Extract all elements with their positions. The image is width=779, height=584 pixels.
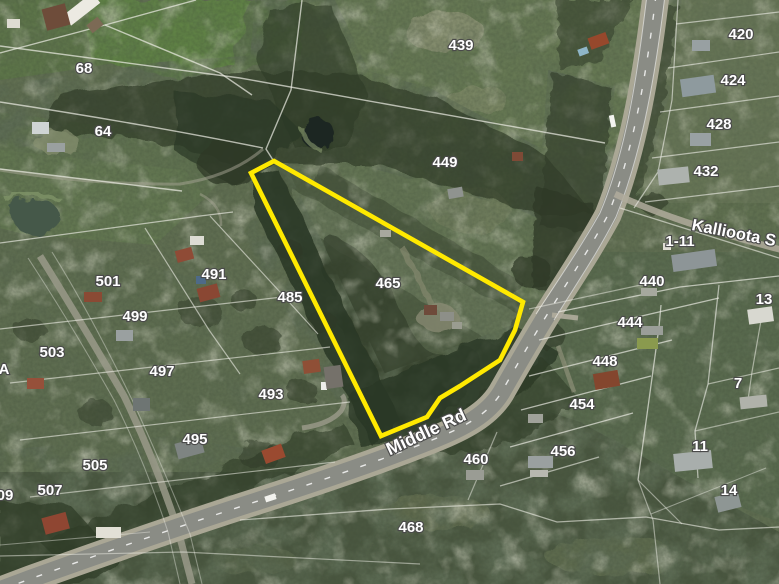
svg-text:507: 507 <box>37 482 62 499</box>
svg-text:09: 09 <box>0 487 13 504</box>
svg-text:7: 7 <box>734 375 742 392</box>
svg-text:456: 456 <box>550 443 575 460</box>
svg-text:1-11: 1-11 <box>665 233 694 250</box>
svg-text:64: 64 <box>95 123 112 140</box>
svg-text:449: 449 <box>432 154 457 171</box>
svg-text:11: 11 <box>692 438 708 455</box>
svg-text:505: 505 <box>82 457 107 474</box>
svg-text:468: 468 <box>398 519 423 536</box>
svg-text:460: 460 <box>463 451 488 468</box>
svg-text:428: 428 <box>706 116 731 133</box>
svg-text:495: 495 <box>182 431 207 448</box>
svg-text:432: 432 <box>693 163 718 180</box>
svg-text:424: 424 <box>720 72 746 89</box>
svg-text:440: 440 <box>639 273 664 290</box>
svg-text:454: 454 <box>569 396 595 413</box>
svg-text:485: 485 <box>277 289 302 306</box>
svg-text:14: 14 <box>721 482 738 499</box>
svg-text:499: 499 <box>122 308 147 325</box>
svg-text:493: 493 <box>258 386 283 403</box>
svg-text:439: 439 <box>448 37 473 54</box>
svg-text:503: 503 <box>39 344 64 361</box>
svg-text:497: 497 <box>149 363 174 380</box>
svg-text:448: 448 <box>592 353 617 370</box>
svg-text:68: 68 <box>76 60 93 77</box>
svg-text:444: 444 <box>617 314 643 331</box>
svg-text:491: 491 <box>201 266 226 283</box>
svg-text:420: 420 <box>728 26 753 43</box>
svg-text:501: 501 <box>95 273 120 290</box>
svg-text:465: 465 <box>375 275 400 292</box>
svg-text:13: 13 <box>756 291 773 308</box>
svg-text:A: A <box>0 361 10 378</box>
